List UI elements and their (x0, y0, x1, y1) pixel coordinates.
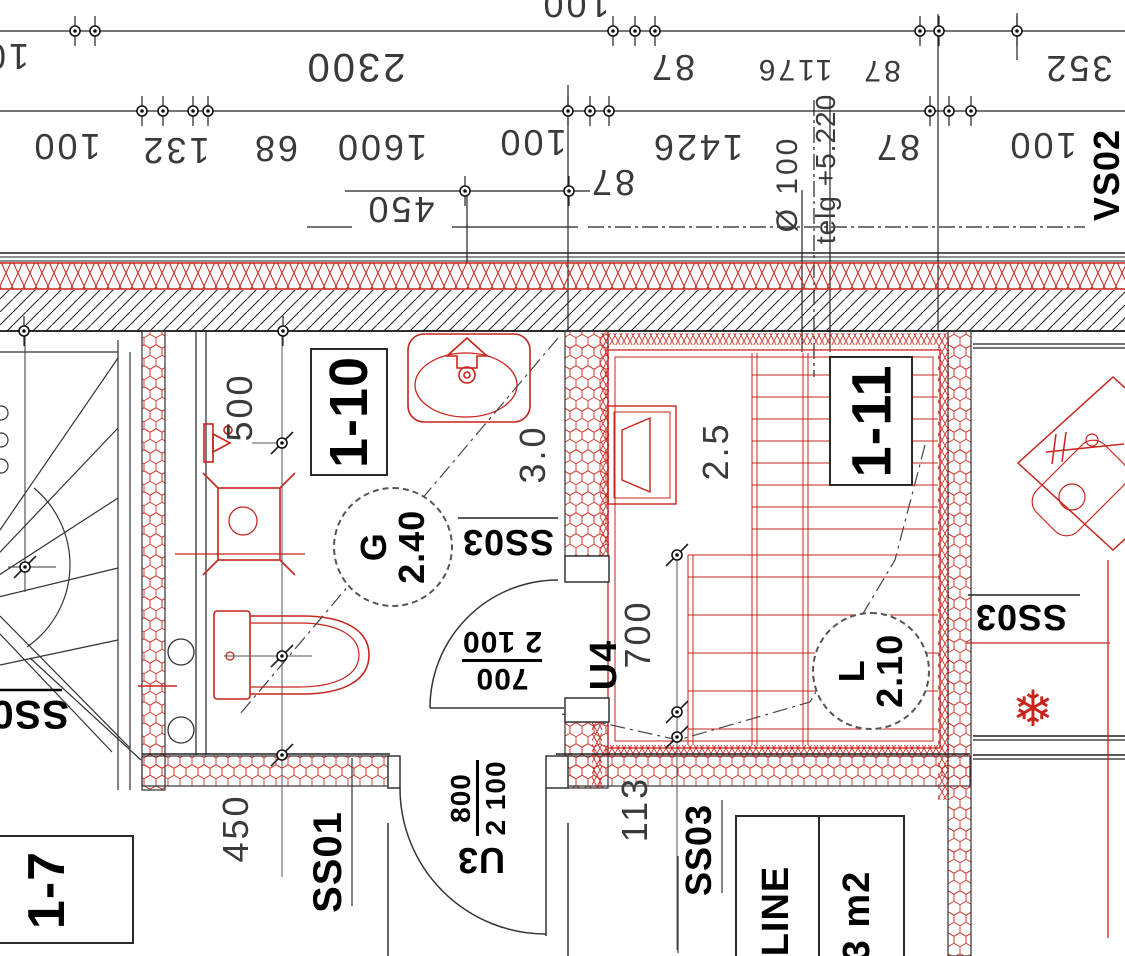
exterior-wall-bands (0, 253, 1125, 331)
dim-100-mid: 100 (492, 122, 572, 162)
wall-insulation-band (0, 263, 1125, 289)
room-number-box-110: 1-10 (310, 348, 388, 476)
dim-500: 500 (185, 385, 295, 429)
dim-87-2: 87 (852, 52, 910, 88)
kitchen-area (966, 344, 1125, 938)
floor-tag-ss01: SS01 (278, 838, 378, 886)
dim-87-4: 87 (582, 160, 642, 204)
room-number-box-17: 1-7 (0, 835, 134, 944)
corner-sink (1018, 377, 1125, 550)
finish-table-area: 3 m2 (807, 889, 907, 943)
door-u3-height: 2 100 (476, 760, 510, 835)
snowflake-icon: ❄ (1012, 684, 1054, 734)
floor-tag-ss01-stair: SS01 (0, 692, 68, 736)
room-ceiling-height: 2.40 (393, 510, 431, 584)
washbasin (408, 334, 530, 422)
dim-slope-3-0: 3.0 (497, 431, 569, 477)
dim-1600: 1600 (322, 126, 440, 168)
room-number-box-111: 1-11 (829, 356, 913, 486)
dim-100-top: 100 (535, 0, 615, 24)
room-ceiling-height: 2.10 (871, 634, 909, 708)
room-tag-g: G 2.40 (333, 487, 453, 607)
dim-10: 10 (0, 36, 36, 76)
dim-68: 68 (246, 128, 304, 168)
sauna-heater (608, 406, 676, 504)
room-tag-letter: L (833, 660, 871, 683)
door-u4-width: 700 (475, 663, 528, 695)
axis-level-label: telg +5.220 (743, 147, 909, 191)
sauna-lining-bottom (602, 745, 943, 757)
door-tag-u3: U3 (450, 842, 512, 878)
bathroom-pipes (168, 639, 194, 743)
wall-hatch-band (0, 290, 1125, 331)
door-u4-height: 2 100 (462, 626, 542, 663)
dim-132: 132 (134, 128, 216, 172)
dim-450-bottom: 450 (192, 804, 280, 852)
floorplan-page: 100 10 2300 87 1176 87 352 100 132 68 16… (0, 0, 1125, 956)
dim-100-left: 100 (28, 126, 104, 166)
room-tag-letter: G (355, 532, 393, 561)
door-u3-size: 800 2 100 (438, 748, 518, 848)
dim-1426: 1426 (644, 126, 750, 168)
door-u4-size: 700 2 100 (452, 622, 552, 698)
floor-tag-ss03-kitchen: SS03 (972, 598, 1070, 636)
room-tag-l: L 2.10 (812, 612, 930, 730)
sauna-lining-top (602, 333, 943, 345)
toilet (214, 611, 369, 699)
dim-1176: 1176 (752, 50, 836, 88)
dim-2300: 2300 (282, 44, 428, 90)
door-u3-width: 800 (446, 773, 475, 823)
dim-450-top: 450 (352, 186, 448, 232)
dim-352: 352 (1036, 48, 1120, 88)
floor-tag-ss03-bath: SS03 (458, 522, 558, 562)
dim-700: 700 (600, 612, 676, 656)
wall-tag-vs02: VS02 (1048, 154, 1125, 196)
dim-87-1: 87 (642, 46, 702, 88)
floor-drain (175, 473, 305, 575)
dim-slope-2-5: 2.5 (683, 427, 749, 475)
